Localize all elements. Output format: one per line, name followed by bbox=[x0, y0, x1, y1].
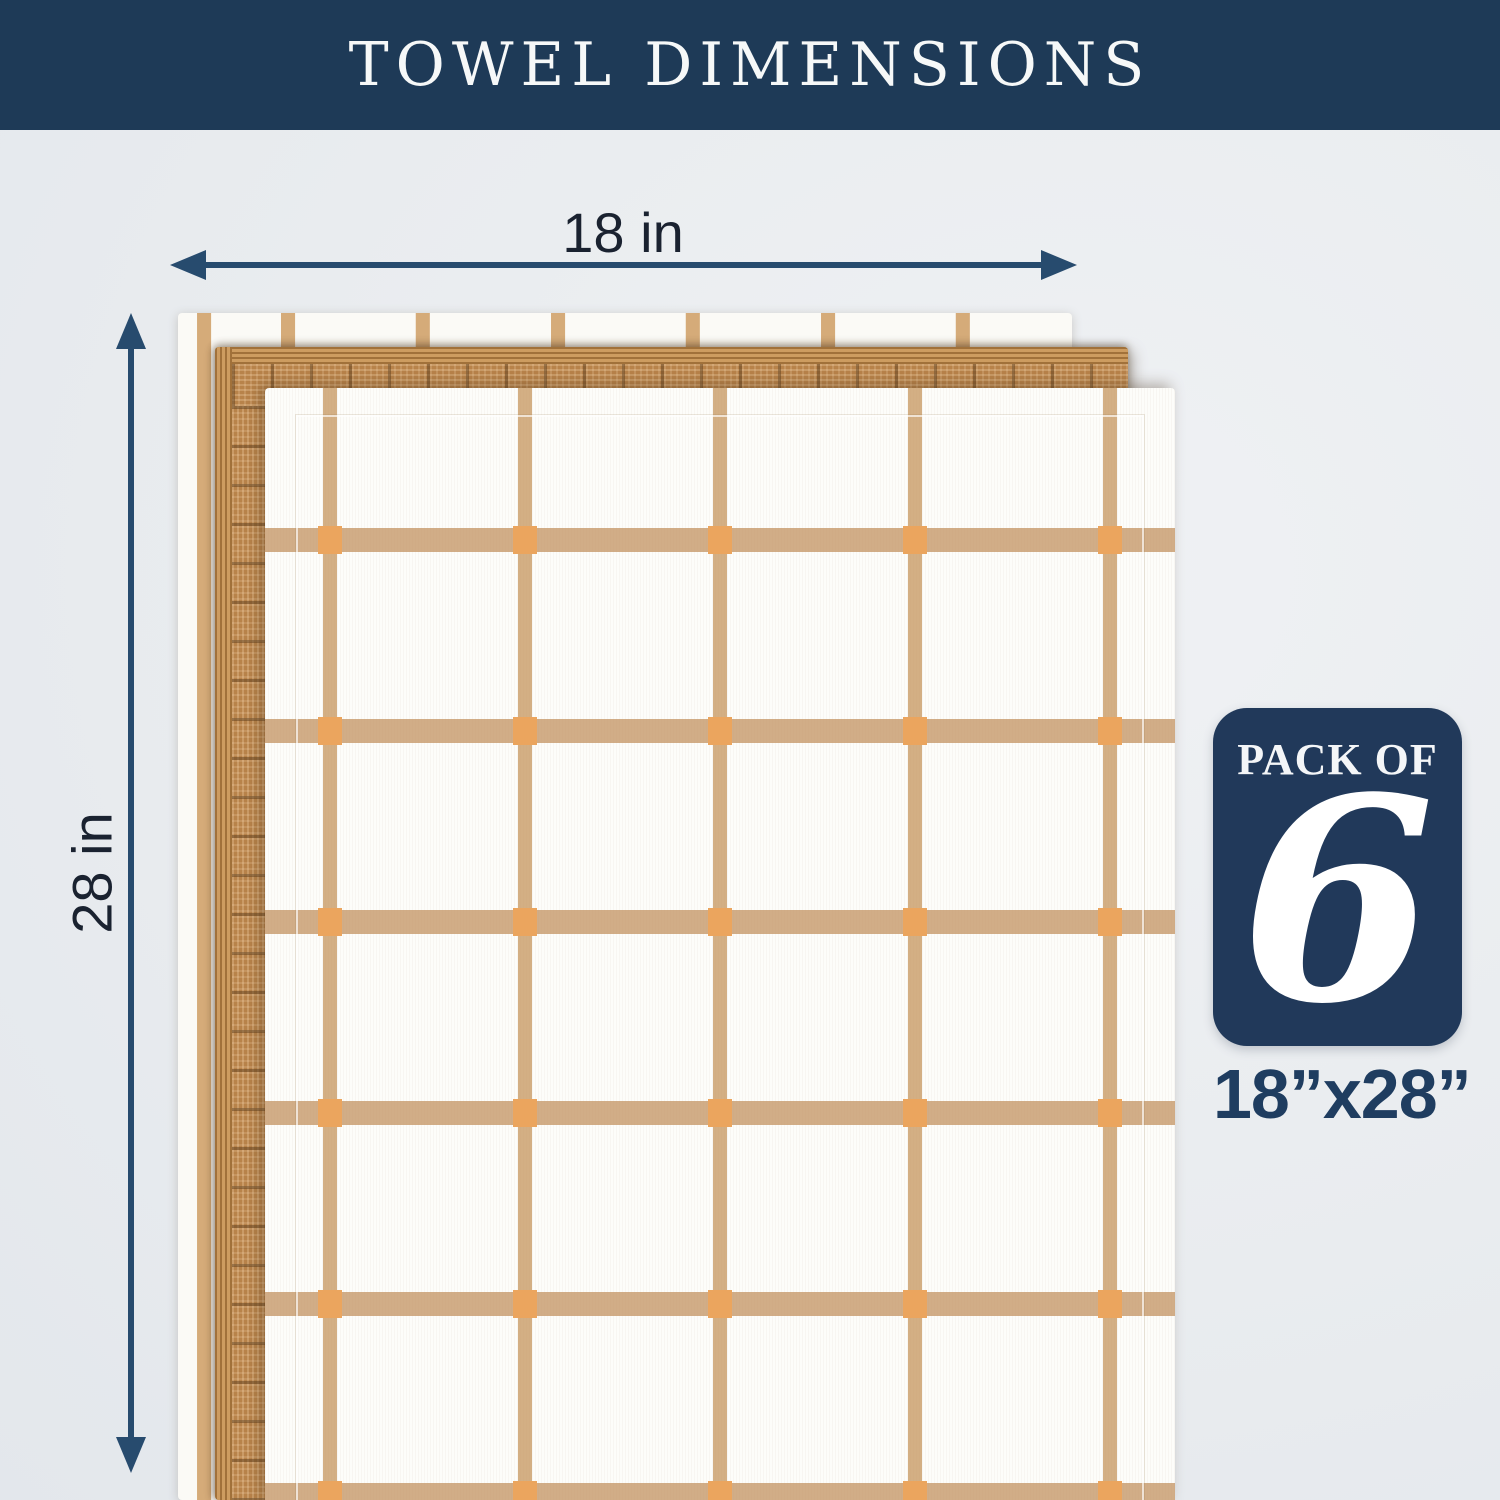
tan-towel-left-edge bbox=[215, 347, 232, 1500]
size-caption: 18”x28” bbox=[1213, 1054, 1462, 1134]
tan-towel-top-edge bbox=[215, 347, 1128, 364]
horizontal-double-arrow-icon bbox=[170, 250, 1077, 280]
page-title: TOWEL DIMENSIONS bbox=[349, 30, 1152, 100]
infographic-canvas: TOWEL DIMENSIONS 1 bbox=[0, 0, 1500, 1500]
header-bar: TOWEL DIMENSIONS bbox=[0, 0, 1500, 130]
height-dimension-label: 28 in bbox=[60, 812, 125, 933]
horizontal-arrow-line bbox=[196, 262, 1051, 268]
towel-front-windowpane bbox=[265, 388, 1175, 1500]
vertical-arrow-line bbox=[128, 339, 134, 1447]
pack-badge: PACK OF 6 bbox=[1213, 708, 1462, 1046]
pack-badge-count: 6 bbox=[1213, 783, 1462, 1021]
vertical-double-arrow-icon bbox=[116, 313, 146, 1473]
windowpane-grid-pattern bbox=[265, 388, 1175, 1500]
